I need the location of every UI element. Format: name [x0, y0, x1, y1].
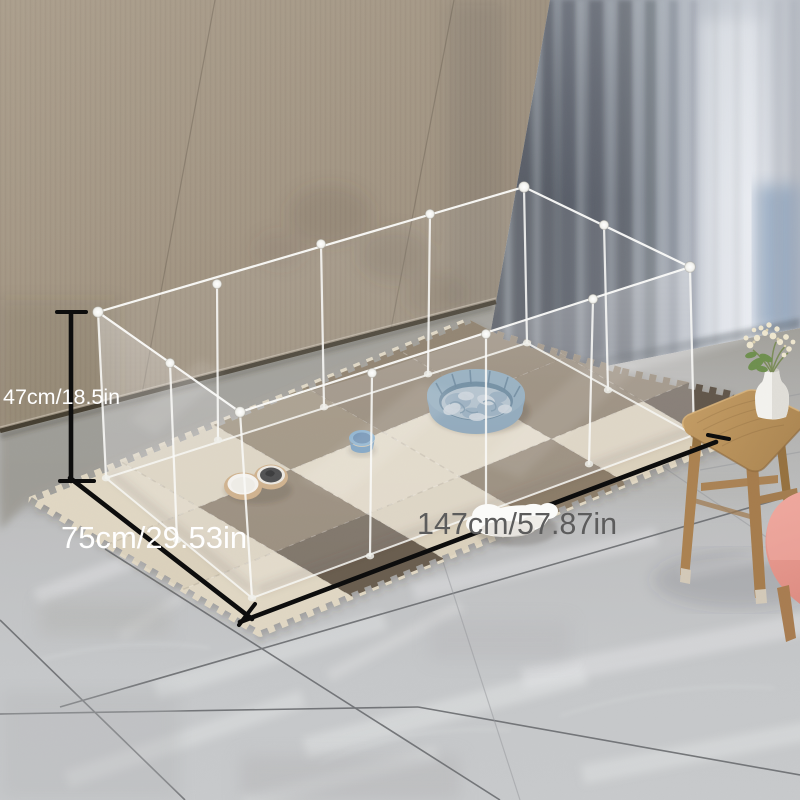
svg-text:147cm/57.87in: 147cm/57.87in — [417, 507, 617, 541]
svg-text:75cm/29.53in: 75cm/29.53in — [61, 520, 247, 555]
svg-text:47cm/18.5in: 47cm/18.5in — [3, 385, 120, 409]
